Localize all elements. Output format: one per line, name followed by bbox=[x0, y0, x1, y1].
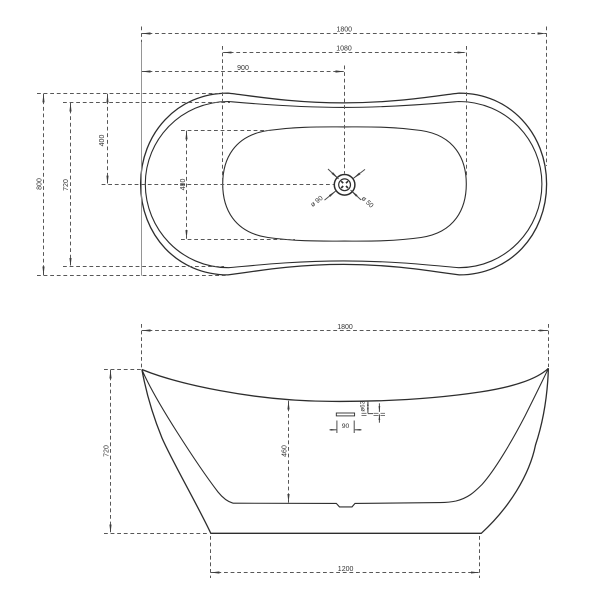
svg-text:400: 400 bbox=[99, 135, 106, 147]
svg-text:ø63: ø63 bbox=[359, 400, 366, 411]
svg-text:1080: 1080 bbox=[336, 45, 352, 52]
svg-text:900: 900 bbox=[237, 65, 249, 72]
svg-text:1800: 1800 bbox=[337, 324, 353, 331]
svg-text:720: 720 bbox=[63, 179, 70, 191]
svg-text:90: 90 bbox=[342, 423, 350, 430]
svg-text:720: 720 bbox=[104, 445, 111, 457]
svg-text:460: 460 bbox=[282, 445, 289, 457]
svg-text:800: 800 bbox=[36, 178, 43, 190]
svg-text:480: 480 bbox=[180, 179, 187, 191]
svg-text:1800: 1800 bbox=[337, 27, 353, 34]
svg-text:1200: 1200 bbox=[338, 566, 354, 573]
